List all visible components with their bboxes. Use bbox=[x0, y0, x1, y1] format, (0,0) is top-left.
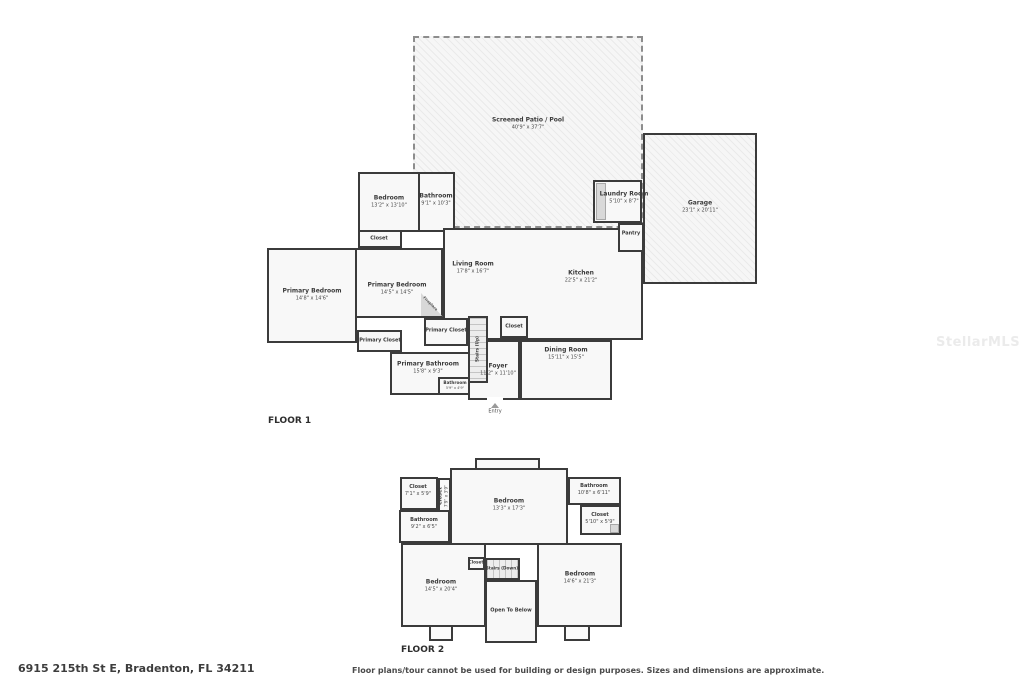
floor2-bedroom-top-label: Bedroom 13'3" x 17'3" bbox=[493, 497, 526, 512]
floor1-bathroom-small-label: Bathroom 5'9" x 4'9" bbox=[443, 381, 466, 392]
room-dims: 13'3" x 17'3" bbox=[493, 506, 526, 513]
floor2-closet-stairs-label: Closet bbox=[469, 560, 484, 566]
floor2-bathroom-right-label: Bathroom 10'8" x 6'11" bbox=[578, 483, 611, 497]
room-name: Living Room bbox=[452, 260, 494, 268]
room-name: Primary Bathroom bbox=[397, 360, 459, 368]
floor2-closet-tl-label: Closet 7'1" x 5'9" bbox=[405, 484, 431, 498]
room-dims: 14'6" x 21'3" bbox=[564, 579, 597, 586]
floor1-garage-label: Garage 23'1" x 20'11" bbox=[682, 199, 718, 214]
floor1-screened-patio-label: Screened Patio / Pool 40'9" x 37'7" bbox=[492, 116, 564, 131]
room-name: Laundry Room bbox=[600, 190, 649, 198]
room-name: Entry bbox=[488, 409, 501, 416]
room-name: Open To Below bbox=[490, 608, 531, 615]
room-name: Primary Bedroom bbox=[367, 281, 426, 289]
room-name: Closet bbox=[585, 512, 614, 519]
room-dims: 5'10" x 5'9" bbox=[585, 519, 614, 526]
floor1-closet-hall-label: Closet bbox=[505, 324, 523, 331]
floor2-open-below-label: Open To Below bbox=[490, 608, 531, 615]
disclaimer-text: Floor plans/tour cannot be used for buil… bbox=[352, 666, 824, 675]
floor1-pantry-label: Pantry bbox=[622, 231, 641, 238]
room-dims: 23'1" x 20'11" bbox=[682, 208, 718, 215]
floor-plan-canvas: StellarMLS Screened Patio / Pool 40'9" x… bbox=[0, 0, 1024, 682]
room-name: Bathroom bbox=[410, 517, 438, 524]
floor1-primary-bathroom-label: Primary Bathroom 15'8" x 9'3" bbox=[397, 360, 459, 375]
room-name: Screened Patio / Pool bbox=[492, 116, 564, 124]
room-name: Stairs (Up) bbox=[475, 336, 481, 362]
floor2-title: FLOOR 2 bbox=[401, 645, 444, 655]
floor1-foyer-label: Foyer 11'2" x 11'10" bbox=[480, 362, 516, 377]
room-name: Bedroom bbox=[564, 570, 597, 578]
room-dims: 14'5" x 20'4" bbox=[425, 587, 458, 594]
room-dims: 7'9" x 3'9" bbox=[445, 485, 451, 507]
room-dims: 5'9" x 4'9" bbox=[443, 386, 466, 391]
room-name: Primary Bedroom bbox=[282, 287, 341, 295]
room-dims: 10'8" x 6'11" bbox=[578, 490, 611, 497]
room-name: Stairs (Down) bbox=[486, 566, 518, 572]
room-dims: 9'1" x 10'3" bbox=[419, 201, 452, 208]
floor1-pantry-outline bbox=[618, 223, 644, 252]
room-name: Closet bbox=[469, 560, 484, 566]
room-name: Bathroom bbox=[578, 483, 611, 490]
stellar-mls-watermark: StellarMLS bbox=[936, 335, 1020, 350]
room-dims: 14'8" x 14'6" bbox=[282, 296, 341, 303]
floor1-primary-closet-left-label: Primary Closet bbox=[359, 338, 400, 345]
room-dims: 15'8" x 9'3" bbox=[397, 369, 459, 376]
floor1-primary-bedroom-left-label: Primary Bedroom 14'8" x 14'6" bbox=[282, 287, 341, 302]
room-dims: 9'2" x 6'5" bbox=[410, 524, 438, 531]
floor1-stairs-up-label: Stairs (Up) bbox=[475, 336, 481, 362]
room-name: Primary Closet bbox=[359, 338, 400, 345]
floor1-bathroom-label: Bathroom 9'1" x 10'3" bbox=[419, 192, 452, 207]
floor1-kitchen-label: Kitchen 22'5" x 21'2" bbox=[565, 269, 598, 284]
room-dims: 15'11" x 15'5" bbox=[544, 355, 587, 362]
floor1-closet-bedroom-label: Closet bbox=[370, 236, 388, 243]
floor2-bedroom-left-label: Bedroom 14'5" x 20'4" bbox=[425, 578, 458, 593]
room-name: Bathroom bbox=[419, 192, 452, 200]
floor1-living-room-label: Living Room 17'8" x 16'7" bbox=[452, 260, 494, 275]
room-dims: 14'5" x 14'5" bbox=[367, 290, 426, 297]
room-dims: 22'5" x 21'2" bbox=[565, 278, 598, 285]
room-name: Closet bbox=[405, 484, 431, 491]
floor2-right-bay bbox=[564, 627, 590, 641]
floor1-laundry-label: Laundry Room 5'10" x 8'7" bbox=[600, 190, 649, 205]
floor2-closet-right-label: Closet 5'10" x 5'9" bbox=[585, 512, 614, 526]
floor1-primary-closet-right-label: Primary Closet bbox=[425, 328, 466, 335]
room-dims: 40'9" x 37'7" bbox=[492, 125, 564, 132]
room-name: Bedroom bbox=[371, 194, 407, 202]
room-dims: 5'10" x 8'7" bbox=[600, 199, 649, 206]
room-name: Foyer bbox=[480, 362, 516, 370]
floor1-entry-opening bbox=[487, 397, 503, 402]
room-dims: 17'8" x 16'7" bbox=[452, 269, 494, 276]
floor1-dining-room-label: Dining Room 15'11" x 15'5" bbox=[544, 346, 587, 361]
floor1-title: FLOOR 1 bbox=[268, 416, 311, 426]
floor2-bedroom-right-label: Bedroom 14'6" x 21'3" bbox=[564, 570, 597, 585]
floor1-primary-bedroom-center-label: Primary Bedroom 14'5" x 14'5" bbox=[367, 281, 426, 296]
room-name: Primary Closet bbox=[425, 328, 466, 335]
floor1-entry-label: Entry bbox=[488, 409, 501, 416]
room-name: Bedroom bbox=[493, 497, 526, 505]
room-name: Garage bbox=[682, 199, 718, 207]
room-name: Bedroom bbox=[425, 578, 458, 586]
entry-direction-icon bbox=[491, 403, 499, 408]
floor2-closet-vert-label: Closet 7'9" x 3'9" bbox=[437, 485, 450, 507]
floor2-stairs-down-label: Stairs (Down) bbox=[486, 566, 518, 572]
floor2-left-bay bbox=[429, 627, 453, 641]
room-name: Closet bbox=[370, 236, 388, 243]
property-address: 6915 215th St E, Bradenton, FL 34211 bbox=[18, 662, 255, 675]
floor2-bathroom-left-label: Bathroom 9'2" x 6'5" bbox=[410, 517, 438, 531]
room-name: Closet bbox=[437, 485, 444, 507]
room-dims: 11'2" x 11'10" bbox=[480, 371, 516, 378]
room-name: Kitchen bbox=[565, 269, 598, 277]
room-name: Pantry bbox=[622, 231, 641, 238]
room-name: Closet bbox=[505, 324, 523, 331]
room-name: Dining Room bbox=[544, 346, 587, 354]
room-dims: 7'1" x 5'9" bbox=[405, 491, 431, 498]
room-dims: 13'2" x 13'10" bbox=[371, 203, 407, 210]
floor1-bedroom-label: Bedroom 13'2" x 13'10" bbox=[371, 194, 407, 209]
